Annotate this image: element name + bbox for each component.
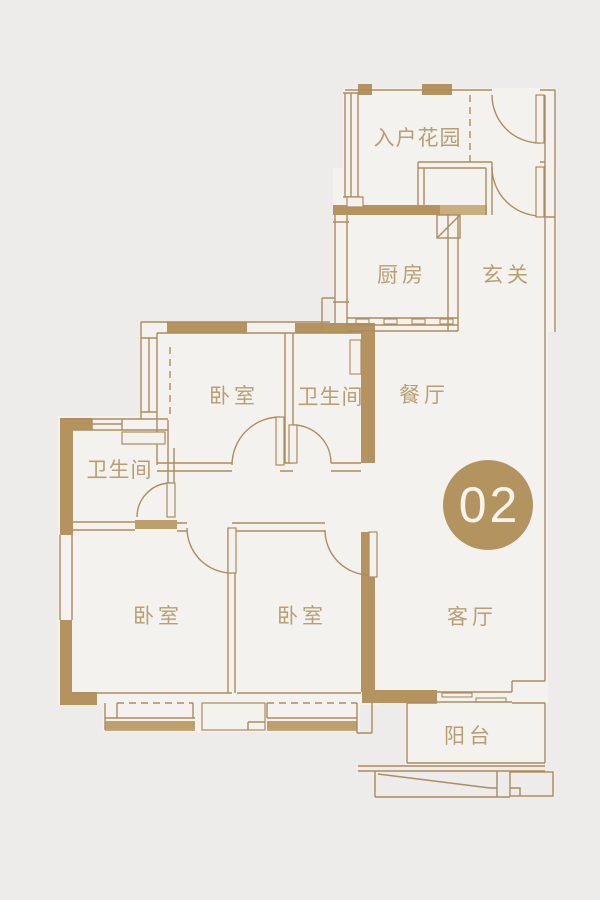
room-label-foyer: 玄关: [478, 259, 532, 289]
room-label-bath-top: 卫生间: [297, 381, 364, 411]
room-label-entry-garden: 入户花园: [373, 122, 462, 152]
room-label-bedroom-left: 卧室: [129, 600, 183, 630]
room-label-balcony: 阳台: [440, 720, 494, 750]
unit-number-badge: 02: [443, 460, 533, 550]
room-label-bedroom-mid: 卧室: [273, 600, 327, 630]
unit-number: 02: [456, 476, 521, 534]
room-label-kitchen: 厨房: [373, 259, 427, 289]
floor-plan-drawing: [0, 0, 600, 900]
room-label-dining: 餐厅: [395, 379, 449, 409]
room-label-living: 客厅: [443, 601, 497, 631]
floor-plan: 入户花园 厨房 玄关 卧室 卫生间 餐厅 卫生间 卧室 卧室 客厅 阳台 02: [0, 0, 600, 900]
floor-areas: [58, 88, 557, 765]
room-label-bath-left: 卫生间: [86, 454, 153, 484]
room-label-bedroom-top: 卧室: [205, 380, 259, 410]
